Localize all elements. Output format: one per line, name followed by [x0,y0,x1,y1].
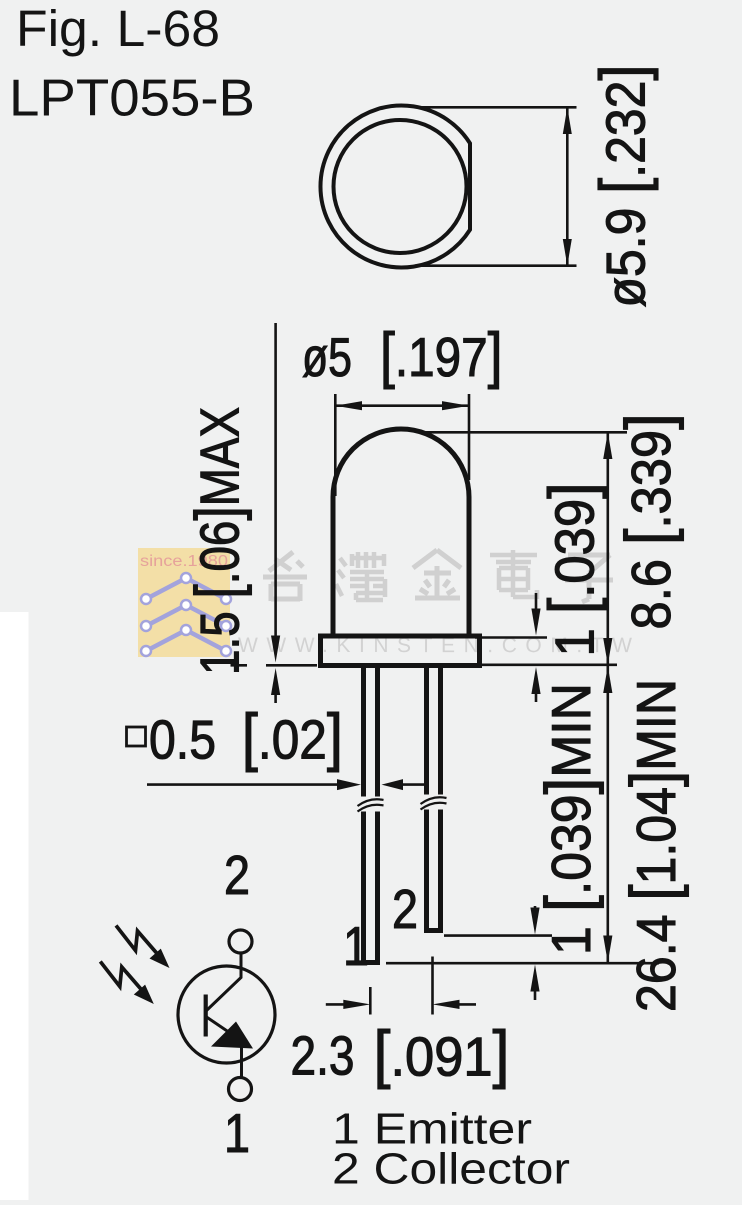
svg-text:1: 1 [343,915,369,976]
svg-text:1: 1 [224,1102,250,1163]
svg-text:[.197]: [.197] [380,321,503,390]
svg-text:ø5: ø5 [302,326,352,388]
svg-text:2: 2 [224,844,250,905]
svg-text:[.091]: [.091] [374,1018,510,1090]
svg-text:ø5.9 [.232]: ø5.9 [.232] [587,65,659,308]
svg-text:8.6 [.339]: 8.6 [.339] [612,414,684,630]
svg-text:2: 2 [392,878,418,939]
svg-text:2 Collector: 2 Collector [332,1145,570,1194]
svg-text:0.5: 0.5 [149,708,216,770]
svg-text:[.02]: [.02] [242,700,343,772]
svg-text:Fig. L-68: Fig. L-68 [16,0,220,57]
svg-text:1 [.039]MIN: 1 [.039]MIN [532,683,604,955]
svg-text:26.4 [1.04]MIN: 26.4 [1.04]MIN [617,679,689,1012]
svg-text:LPT055-B: LPT055-B [9,70,255,128]
svg-text:2.3: 2.3 [291,1025,355,1087]
svg-text:1 [.039]: 1 [.039] [535,483,607,657]
svg-text:1.5 [.06]MAX: 1.5 [.06]MAX [184,407,253,675]
